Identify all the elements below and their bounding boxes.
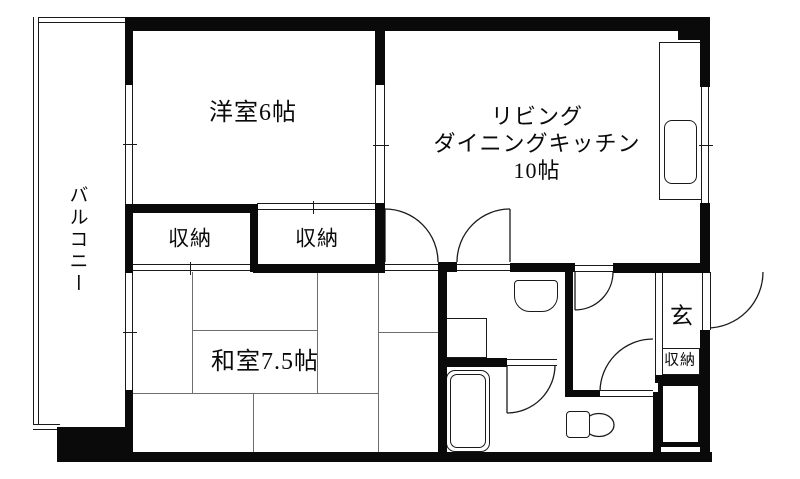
- door-arc-french-left: [385, 209, 438, 262]
- tatami-line: [130, 393, 378, 394]
- wall-right-upper: [700, 31, 710, 87]
- wall-bath-top: [438, 358, 507, 367]
- wall-right-lower: [700, 330, 710, 455]
- wall-closet-divider: [250, 204, 258, 272]
- wall-toilet-top: [565, 390, 600, 397]
- balcony-rail-bottom: [33, 424, 60, 430]
- sliding-partition-western-ldk: [375, 85, 385, 203]
- entrance-label: 玄: [670, 305, 694, 328]
- balcony-rail-top: [33, 17, 127, 23]
- wall-top: [127, 17, 710, 31]
- balcony-label: バルコニー: [68, 185, 87, 295]
- door-arc-toilet: [600, 339, 653, 392]
- wall-bottom-left-corner: [57, 427, 133, 457]
- window-western-room-tick: [123, 144, 137, 145]
- balcony-rail-left: [33, 17, 39, 430]
- washing-machine-pan: [443, 318, 487, 358]
- ldk-label-line1: リビング: [491, 106, 583, 128]
- wall-western-room-bottom: [125, 204, 257, 213]
- closet-right-sliding-door: [257, 203, 375, 210]
- entrance-step-edge: [655, 272, 663, 376]
- ldk-label-line2: ダイニングキッチン: [433, 133, 640, 155]
- window-western-room: [125, 85, 133, 204]
- wall-bottom: [57, 452, 712, 462]
- wall-washroom-hall: [565, 272, 573, 397]
- front-door-leaf: [702, 272, 711, 330]
- closet-left-label: 収納: [168, 229, 212, 250]
- ldk-label-line3: 10帖: [513, 160, 560, 182]
- washbasin-unit: [514, 280, 558, 312]
- tatami-line: [253, 393, 254, 452]
- window-ldk-tick: [699, 145, 713, 146]
- tatami-line: [378, 272, 379, 452]
- wall-room-divider-upper: [375, 17, 385, 85]
- door-arc-french-right: [457, 209, 510, 262]
- wall-entrance-bottom: [655, 375, 710, 383]
- toilet-tank: [566, 411, 590, 438]
- wall-room-divider-lower: [375, 203, 385, 272]
- door-arc-hallway: [575, 272, 613, 310]
- western-room-label: 洋室6帖: [209, 101, 297, 125]
- closet-left-sliding-door-tick: [190, 262, 191, 275]
- door-arc-front-entrance: [707, 272, 763, 328]
- tatami-line: [192, 272, 193, 393]
- sliding-partition-western-ldk-tick: [373, 145, 389, 146]
- wall-left-middle: [125, 204, 133, 273]
- wall-left-lower: [125, 390, 133, 430]
- bathtub-inner: [450, 374, 486, 448]
- japanese-room-label: 和室7.5帖: [211, 350, 319, 374]
- tatami-line: [378, 332, 438, 333]
- opening-bathroom-door: [507, 359, 557, 366]
- wall-french-door-post: [438, 262, 457, 272]
- floorplan-canvas: バルコニー洋室6帖リビングダイニングキッチン10帖収納収納和室7.5帖玄収納: [0, 0, 800, 479]
- closet-right-sliding-door-tick: [313, 201, 314, 214]
- closet-right-label: 収納: [295, 229, 339, 250]
- door-arc-bathroom: [507, 365, 555, 413]
- wall-toilet-right: [653, 392, 661, 453]
- closet-left-sliding-door: [129, 264, 250, 271]
- window-japanese-room: [125, 272, 133, 390]
- opening-toilet-door: [600, 390, 653, 397]
- wall-ldk-bottom-b: [613, 263, 710, 273]
- window-japanese-room-tick: [123, 332, 137, 333]
- wall-ldk-bottom-a: [510, 263, 575, 272]
- wall-left-upper: [125, 17, 133, 85]
- opening-ldk-washroom: [457, 264, 510, 271]
- tatami-line: [192, 330, 317, 331]
- wall-closet-right-bottom: [253, 264, 385, 273]
- kitchen-sink: [664, 120, 697, 184]
- window-ldk: [701, 87, 709, 203]
- opening-ldk-hallway: [575, 265, 613, 272]
- opening-ldk-japanese-room: [385, 264, 438, 271]
- pipe-space-box: [658, 381, 703, 447]
- entrance-storage-label: 収納: [664, 354, 696, 369]
